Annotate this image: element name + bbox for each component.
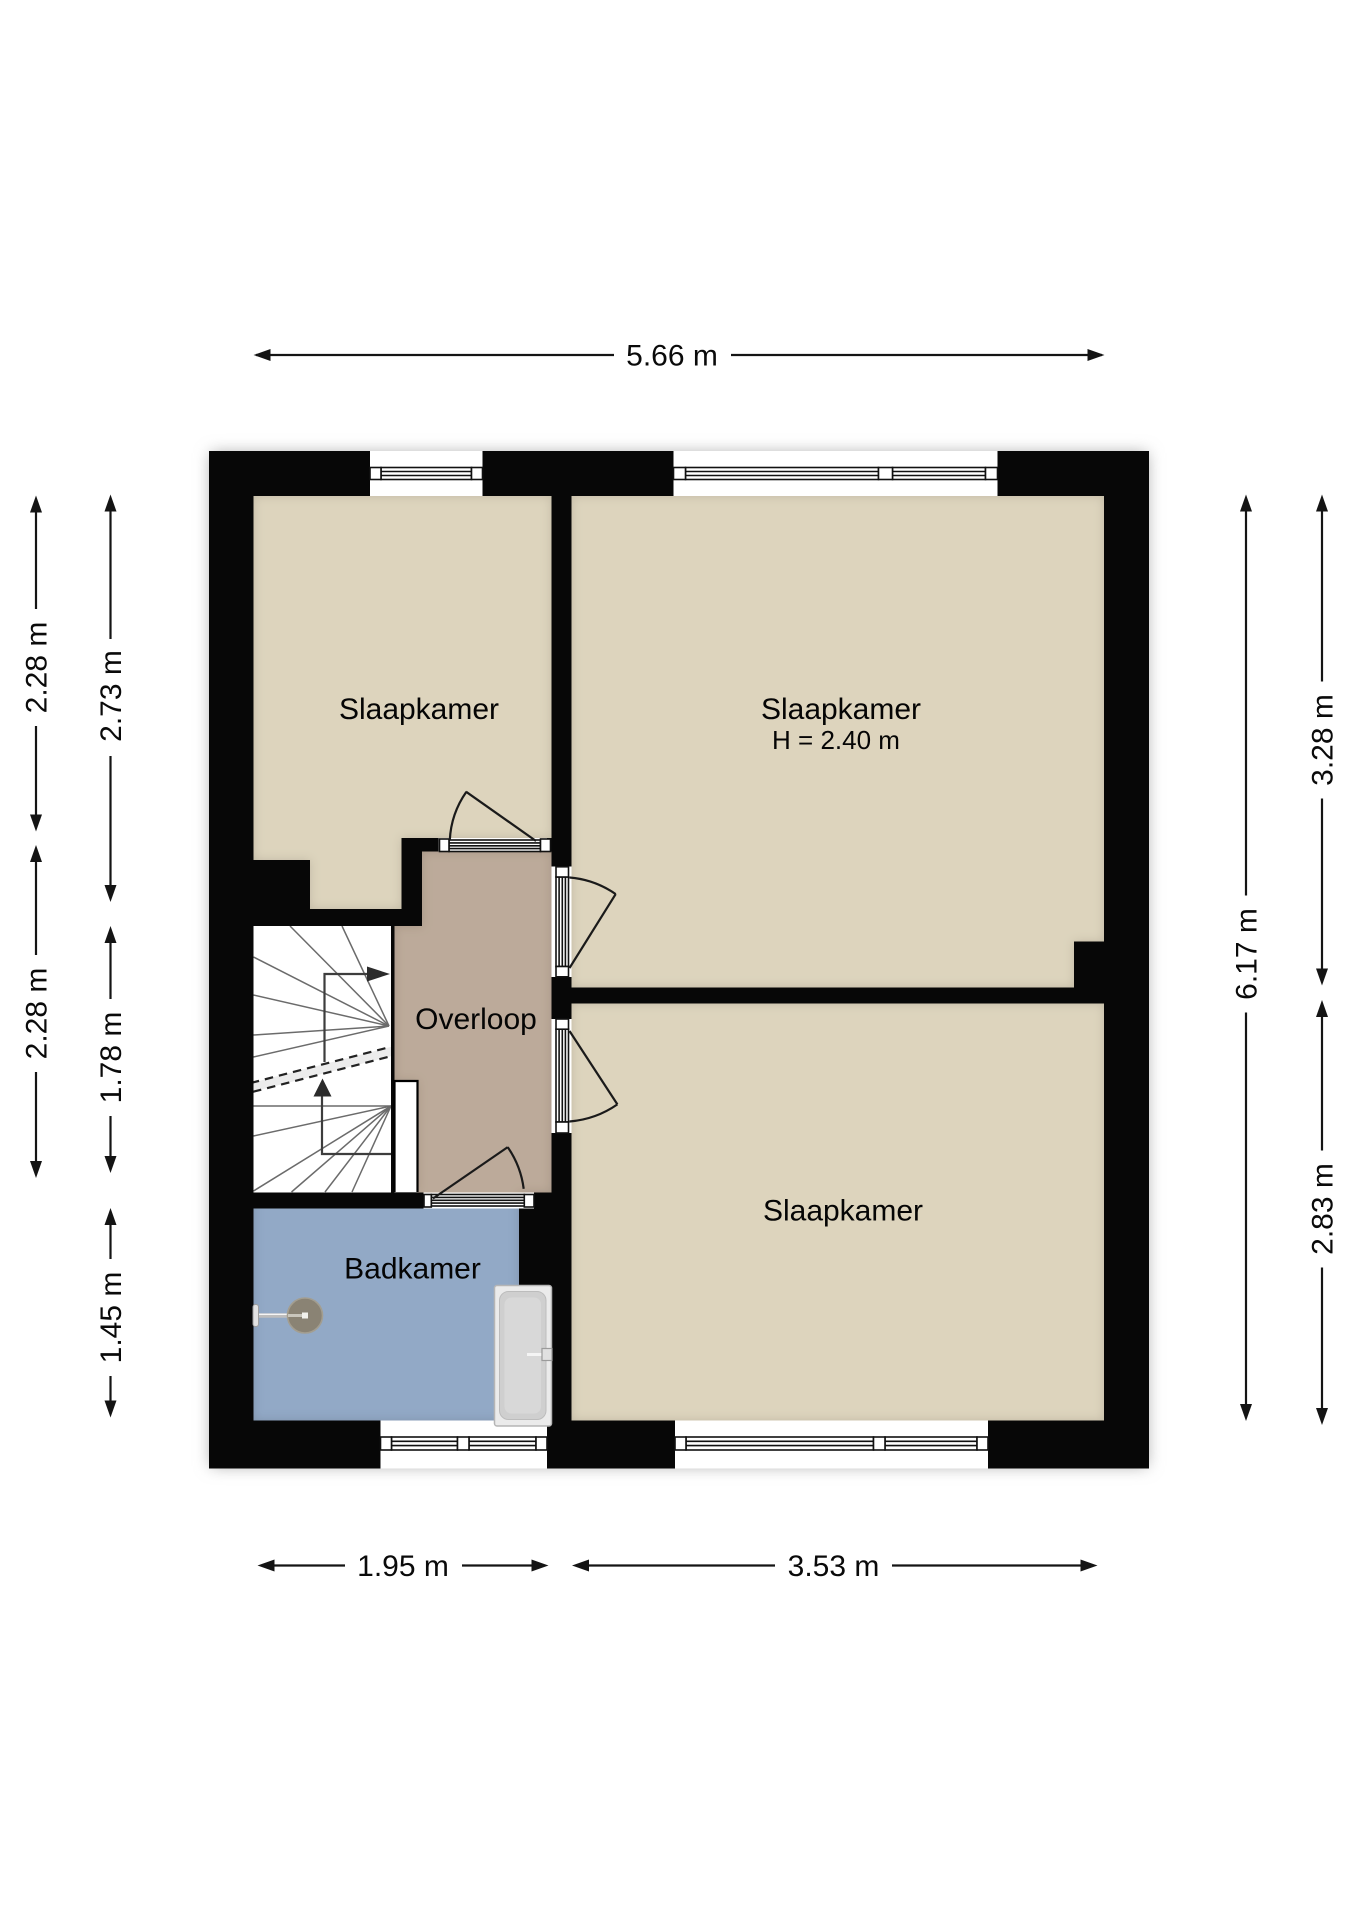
- svg-text:3.28 m: 3.28 m: [1307, 694, 1340, 786]
- svg-text:H = 2.40 m: H = 2.40 m: [772, 725, 900, 755]
- svg-text:2.83 m: 2.83 m: [1307, 1163, 1340, 1255]
- svg-text:Slaapkamer: Slaapkamer: [339, 693, 499, 726]
- svg-text:1.95 m: 1.95 m: [357, 1550, 449, 1583]
- svg-text:5.66 m: 5.66 m: [626, 340, 718, 373]
- svg-text:Badkamer: Badkamer: [344, 1253, 481, 1286]
- svg-text:1.78 m: 1.78 m: [95, 1012, 128, 1104]
- svg-text:3.53 m: 3.53 m: [788, 1550, 880, 1583]
- svg-text:6.17 m: 6.17 m: [1231, 908, 1264, 1000]
- svg-text:2.28 m: 2.28 m: [21, 622, 54, 714]
- svg-text:Slaapkamer: Slaapkamer: [761, 693, 921, 726]
- svg-text:Overloop: Overloop: [415, 1003, 537, 1036]
- svg-text:2.73 m: 2.73 m: [95, 650, 128, 742]
- svg-text:Slaapkamer: Slaapkamer: [763, 1195, 923, 1228]
- svg-text:1.45 m: 1.45 m: [95, 1272, 128, 1364]
- svg-text:2.28 m: 2.28 m: [21, 968, 54, 1060]
